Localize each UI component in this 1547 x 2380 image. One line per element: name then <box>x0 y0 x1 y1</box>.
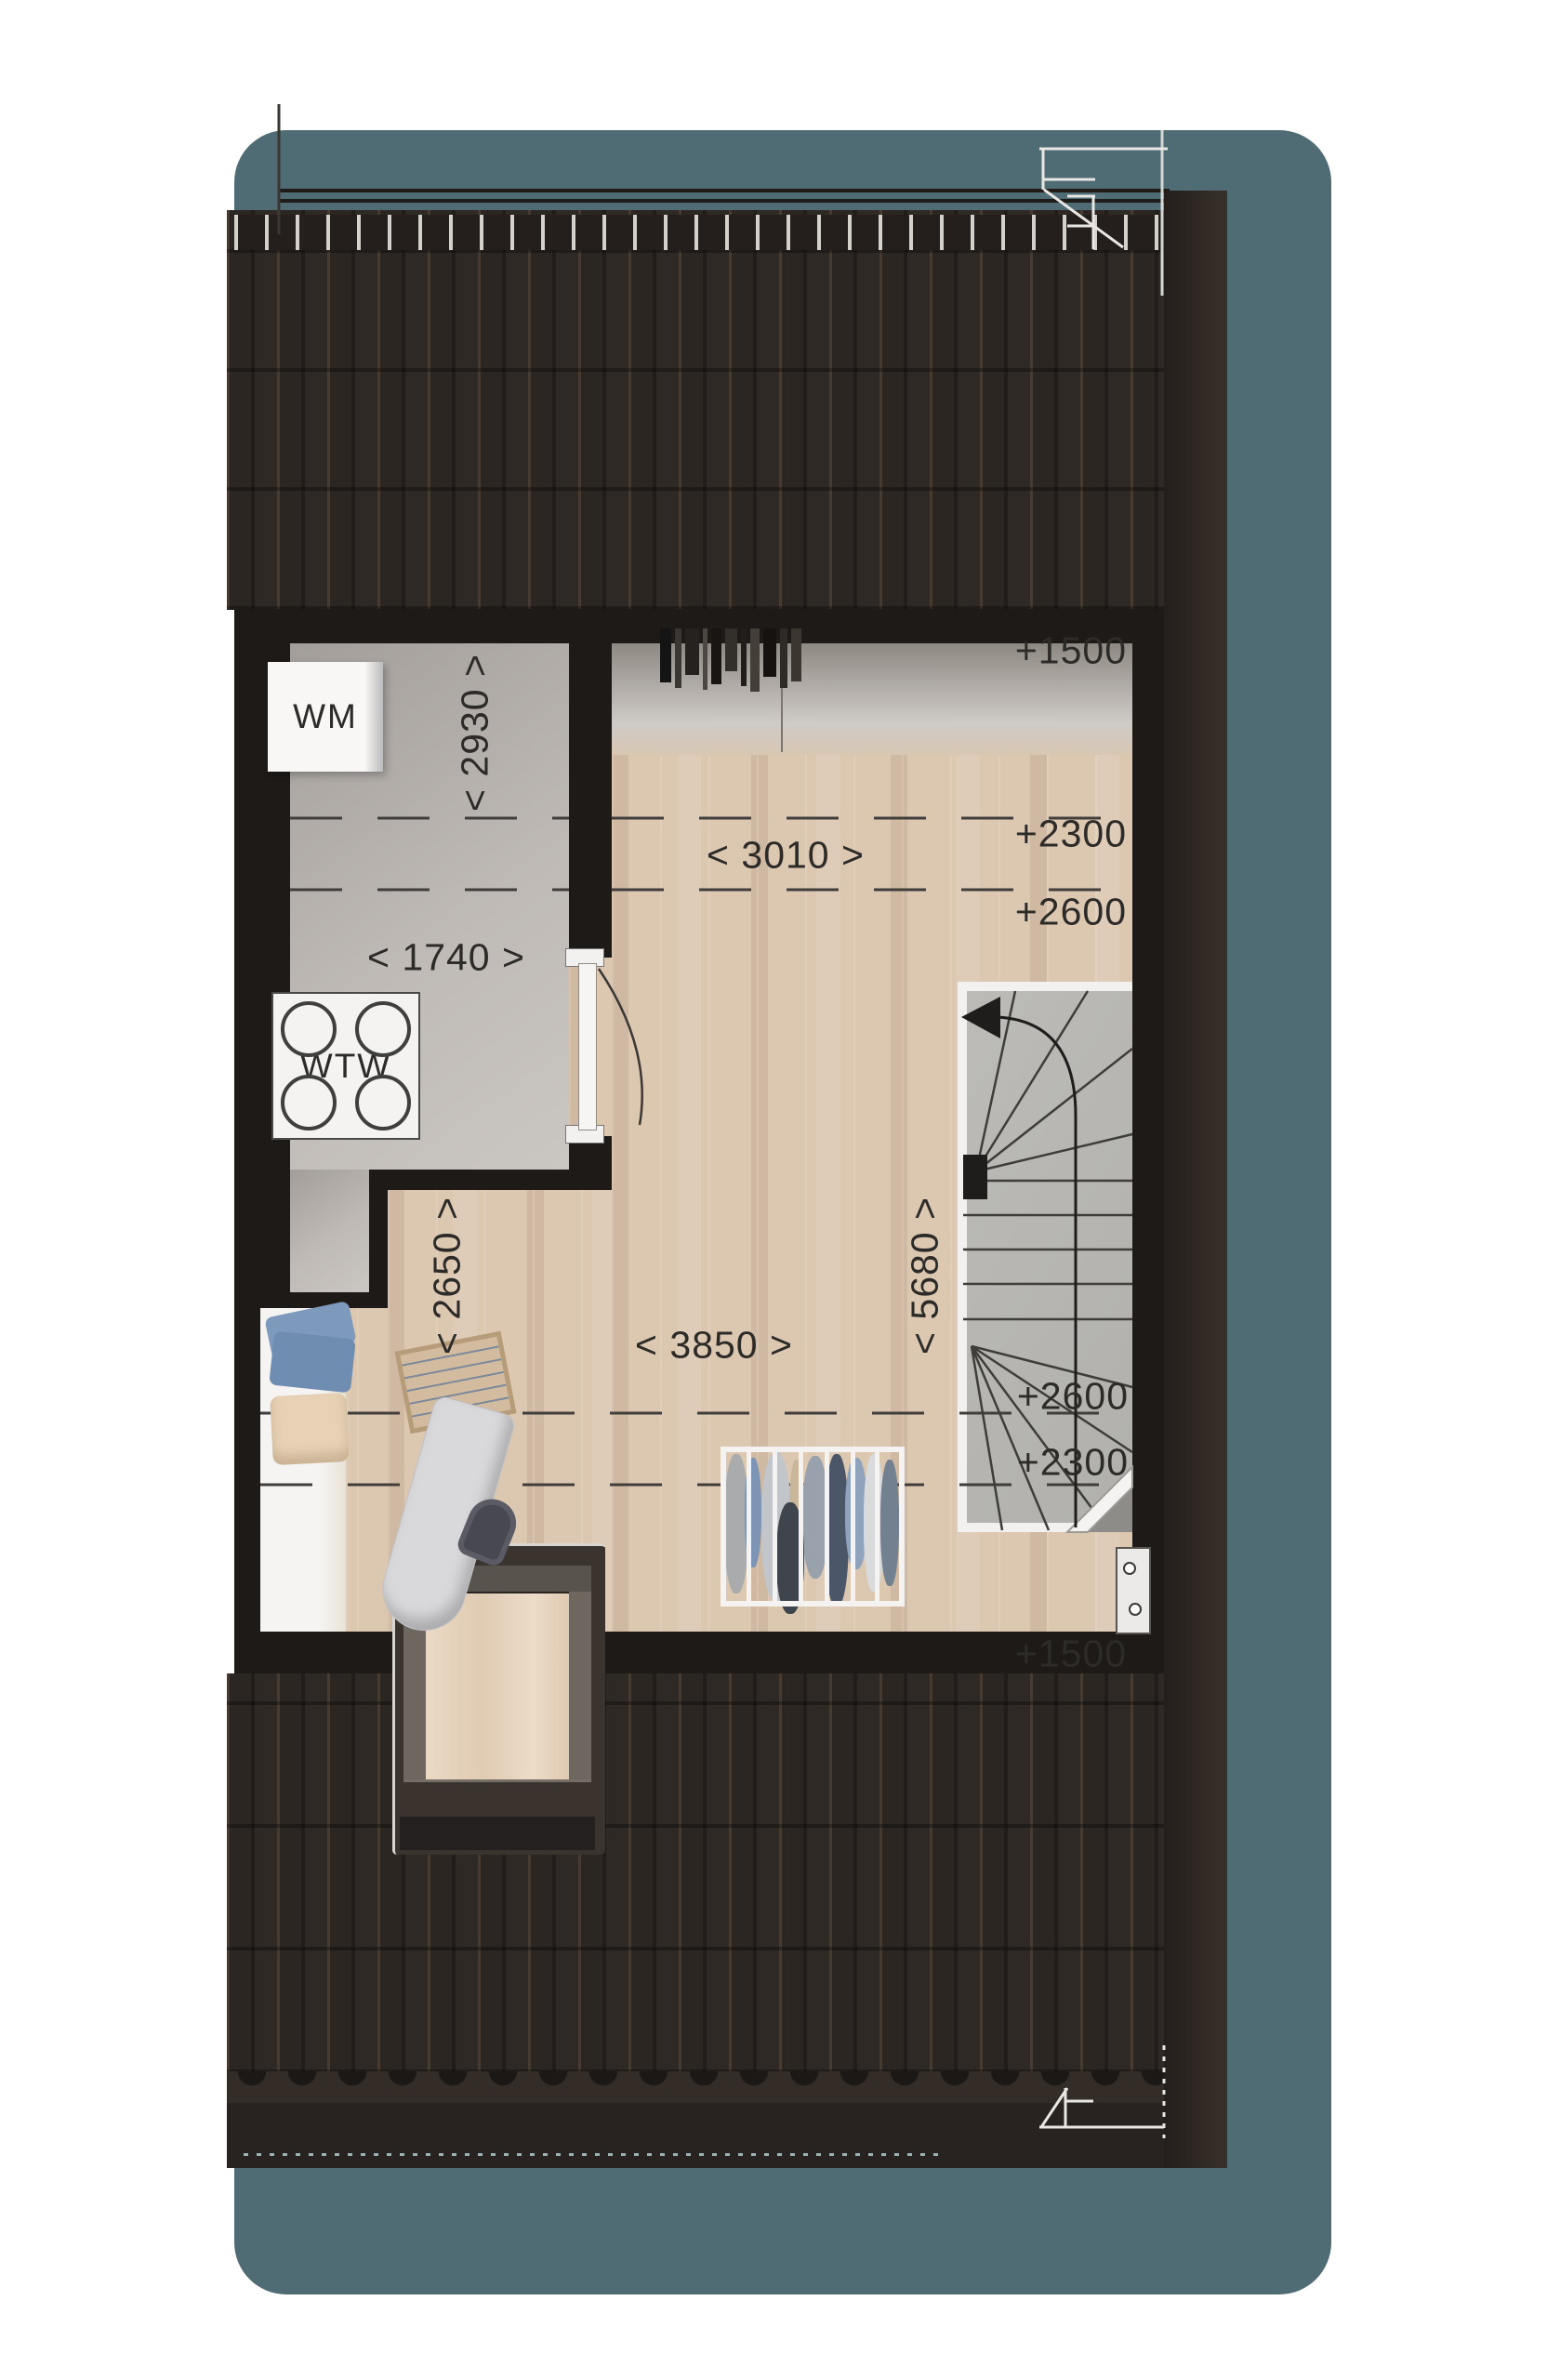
roof-window-jamb-right <box>569 1592 591 1783</box>
book <box>741 628 747 686</box>
folded-jeans <box>269 1331 356 1394</box>
eaves-bottom <box>227 2103 1227 2168</box>
door-leaf <box>578 963 597 1130</box>
rack-bar <box>773 1447 777 1606</box>
folded-garment <box>270 1393 350 1465</box>
book <box>685 628 699 675</box>
radiator-valve <box>1123 1562 1136 1575</box>
clothes-rack <box>721 1447 905 1606</box>
ridge-line <box>279 189 1170 192</box>
rack-bar <box>851 1447 855 1606</box>
height-marker-top-2300: +2300 <box>1015 813 1127 856</box>
book <box>660 628 671 682</box>
roof-top <box>227 210 1164 610</box>
rack-bar <box>747 1447 751 1606</box>
gutter-line <box>279 199 1170 203</box>
washing-machine-label: WM <box>293 697 358 736</box>
book <box>711 628 721 684</box>
radiator <box>1116 1547 1151 1634</box>
gutter-dotted-line <box>244 2153 941 2156</box>
rack-bar <box>799 1447 803 1606</box>
roof-window-shadow <box>400 1817 595 1850</box>
book <box>725 628 737 671</box>
roof-tile-edge <box>227 2071 1164 2103</box>
dim-laundry-depth: < 2930 > <box>454 654 497 812</box>
height-marker-bottom-2600: +2600 <box>1017 1375 1129 1419</box>
wtw-corner-circle <box>281 1001 337 1057</box>
roof-tile-battens-top <box>234 215 1164 250</box>
dim-laundry-width: < 1740 > <box>367 936 525 980</box>
rack-bar <box>825 1447 829 1606</box>
dim-room-width: < 3850 > <box>635 1324 793 1368</box>
rack-bar <box>875 1447 879 1606</box>
heat-recovery-unit: WTW <box>271 992 420 1140</box>
dim-left-depth: < 2650 > <box>426 1197 469 1355</box>
height-marker-bottom-1500: +1500 <box>1015 1633 1127 1676</box>
radiator-valve <box>1129 1603 1142 1616</box>
dim-right-depth: < 5680 > <box>904 1197 947 1355</box>
roof-window-sill <box>403 1779 591 1819</box>
book <box>791 628 801 681</box>
floor-plan-canvas: WM WTW <box>0 0 1547 2380</box>
roof-bottom <box>227 1673 1164 2073</box>
wtw-corner-circle <box>281 1075 337 1130</box>
book <box>675 628 681 688</box>
book <box>780 628 787 688</box>
roof-edge-right <box>1164 191 1227 2168</box>
wtw-corner-circle <box>355 1075 411 1130</box>
laundry-room-floor-lower <box>290 1170 369 1292</box>
washing-machine: WM <box>268 662 383 772</box>
shelf-objects <box>660 628 818 694</box>
dim-landing-width: < 3010 > <box>707 834 865 878</box>
height-marker-top-2600: +2600 <box>1015 891 1127 934</box>
book <box>763 628 776 677</box>
book <box>750 628 760 692</box>
wtw-corner-circle <box>355 1001 411 1057</box>
height-marker-bottom-2300: +2300 <box>1017 1441 1129 1485</box>
book <box>703 628 707 690</box>
height-marker-top-1500: +1500 <box>1015 629 1127 673</box>
